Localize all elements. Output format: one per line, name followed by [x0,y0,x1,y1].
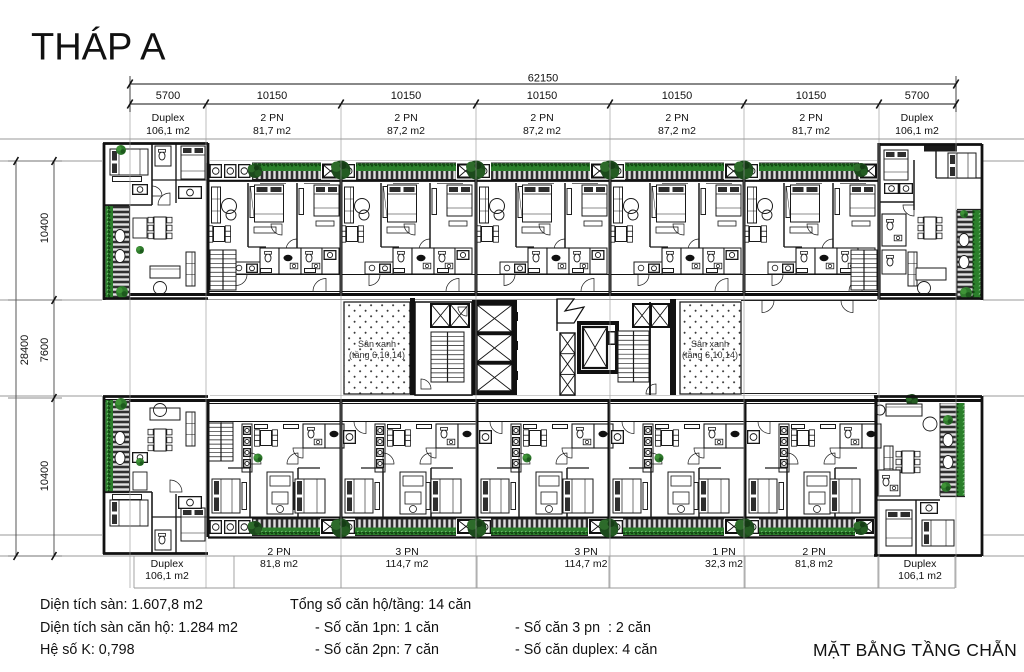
svg-text:10150: 10150 [257,90,288,102]
svg-text:5700: 5700 [156,90,180,102]
svg-text:Duplex: Duplex [152,112,185,124]
svg-text:1 PN: 1 PN [712,546,735,558]
svg-text:- Số căn 2pn: 7 căn: - Số căn 2pn: 7 căn [315,642,439,658]
svg-text:81,8 m2: 81,8 m2 [795,558,833,570]
svg-text:Diện tích sàn căn hộ: 1.284 m2: Diện tích sàn căn hộ: 1.284 m2 [40,620,238,636]
svg-text:- Số căn duplex: 4 căn: - Số căn duplex: 4 căn [515,642,657,658]
svg-text:87,2 m2: 87,2 m2 [387,125,425,137]
svg-text:81,7 m2: 81,7 m2 [792,125,830,137]
svg-text:3 PN: 3 PN [395,546,418,558]
svg-text:114,7 m2: 114,7 m2 [386,558,429,570]
svg-text:- Số căn 1pn: 1 căn: - Số căn 1pn: 1 căn [315,620,439,636]
svg-text:Diện tích sàn: 1.607,8 m2: Diện tích sàn: 1.607,8 m2 [40,597,203,613]
svg-text:MẶT BẰNG TẦNG CHẴN: MẶT BẰNG TẦNG CHẴN [813,639,1017,660]
svg-text:Duplex: Duplex [904,558,937,570]
svg-text:10400: 10400 [39,461,51,492]
svg-text:Duplex: Duplex [901,112,934,124]
svg-text:62150: 62150 [528,73,559,85]
svg-text:(tầng 6,10,14): (tầng 6,10,14) [349,350,405,360]
svg-text:Hệ số K: 0,798: Hệ số K: 0,798 [40,642,135,658]
svg-text:2 PN: 2 PN [394,112,417,124]
svg-text:2 PN: 2 PN [802,546,825,558]
svg-text:Duplex: Duplex [151,558,184,570]
svg-text:87,2 m2: 87,2 m2 [523,125,561,137]
svg-text:2 PN: 2 PN [665,112,688,124]
svg-text:10150: 10150 [796,90,827,102]
svg-text:10150: 10150 [662,90,693,102]
svg-text:2 PN: 2 PN [530,112,553,124]
svg-text:5700: 5700 [905,90,929,102]
svg-text:10150: 10150 [527,90,558,102]
svg-text:THÁP A: THÁP A [31,26,166,69]
svg-text:2 PN: 2 PN [799,112,822,124]
svg-text:Sân xanh: Sân xanh [358,339,396,349]
svg-text:7600: 7600 [39,338,51,362]
svg-text:Sân xanh: Sân xanh [691,339,729,349]
svg-text:2 PN: 2 PN [267,546,290,558]
svg-text:81,7 m2: 81,7 m2 [253,125,291,137]
svg-text:106,1 m2: 106,1 m2 [145,570,189,582]
svg-text:114,7 m2: 114,7 m2 [565,558,608,570]
svg-text:10150: 10150 [391,90,422,102]
svg-text:32,3 m2: 32,3 m2 [705,558,743,570]
svg-text:28400: 28400 [19,335,31,366]
svg-text:106,1 m2: 106,1 m2 [898,570,942,582]
svg-text:10400: 10400 [39,213,51,244]
svg-text:Tổng số căn hộ/tầng: 14 căn: Tổng số căn hộ/tầng: 14 căn [290,597,471,613]
svg-text:106,1 m2: 106,1 m2 [146,125,190,137]
svg-text:87,2 m2: 87,2 m2 [658,125,696,137]
svg-text:3 PN: 3 PN [574,546,597,558]
svg-text:81,8 m2: 81,8 m2 [260,558,298,570]
svg-text:106,1 m2: 106,1 m2 [895,125,939,137]
svg-text:2 PN: 2 PN [260,112,283,124]
svg-text:- Số căn 3 pn : 2 căn: - Số căn 3 pn : 2 căn [515,620,651,636]
svg-text:(tầng 6,10,14): (tầng 6,10,14) [682,350,738,360]
